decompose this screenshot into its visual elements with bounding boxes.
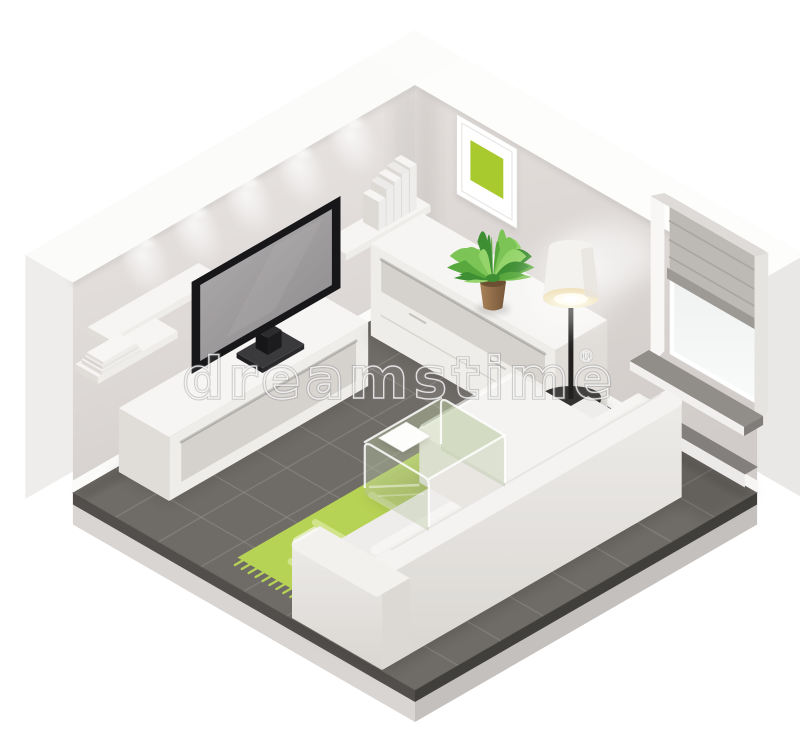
scene-canvas: dreamstime dreamstime ® ® <box>0 0 800 731</box>
watermark-text: dreamstime <box>183 346 617 412</box>
watermark-registered-icon: ® <box>578 347 595 367</box>
isometric-living-room-illustration: dreamstime dreamstime ® ® <box>0 0 800 731</box>
watermark: dreamstime dreamstime ® ® <box>183 346 617 412</box>
